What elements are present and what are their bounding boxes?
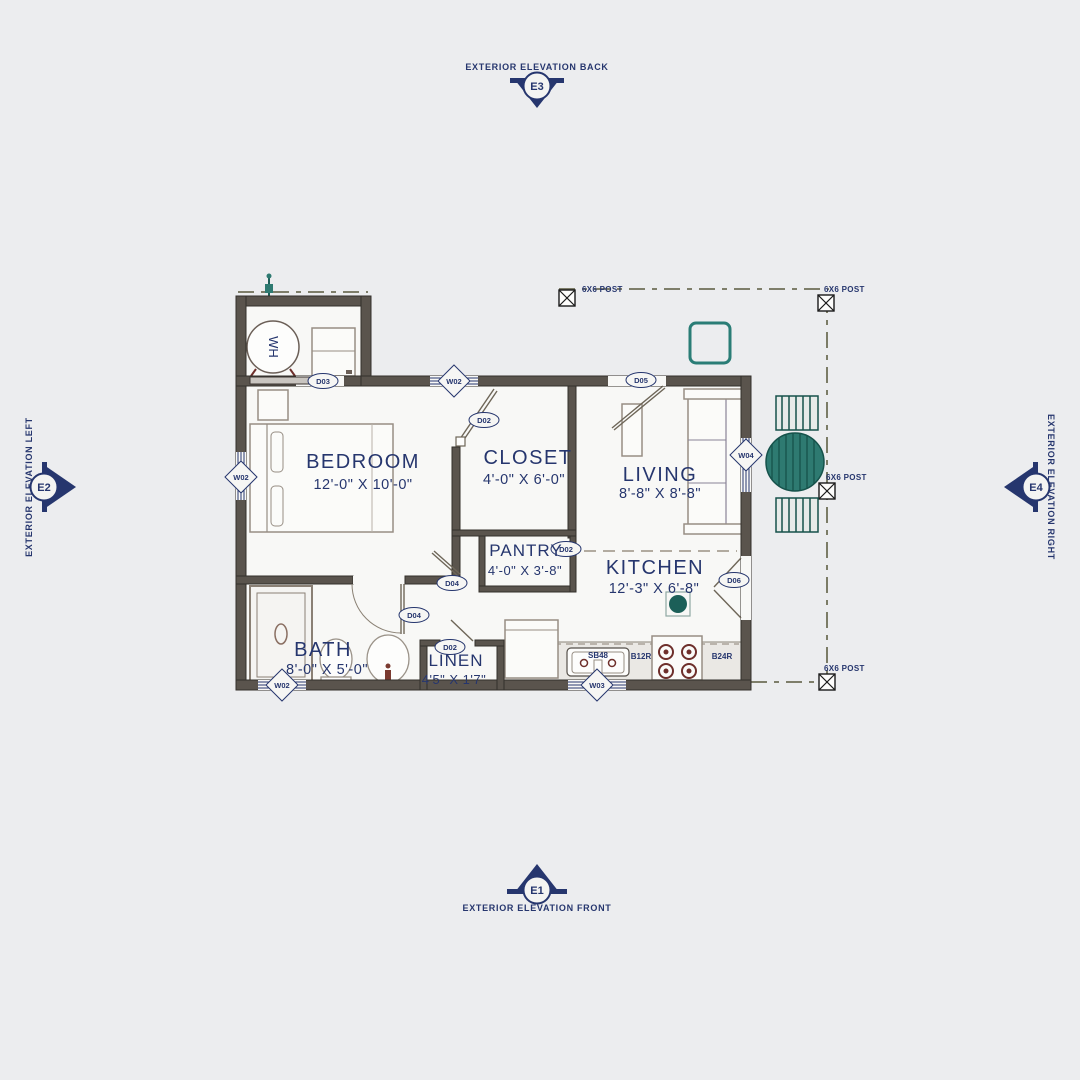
- sofa: [684, 389, 742, 534]
- svg-text:8'-8" X 8'-8": 8'-8" X 8'-8": [619, 486, 701, 502]
- post-3-label: 6X6 POST: [826, 473, 867, 482]
- post-2-label: 6X6 POST: [824, 285, 865, 294]
- patio-chair-top: [776, 394, 818, 432]
- elevation-front-code: E1: [530, 885, 543, 897]
- svg-text:BEDROOM: BEDROOM: [306, 451, 420, 473]
- b12r-label: B12R: [631, 652, 652, 661]
- svg-text:4'-0" X 6'-0": 4'-0" X 6'-0": [483, 472, 565, 488]
- svg-text:D03: D03: [316, 377, 330, 386]
- bath-sink: [367, 635, 409, 684]
- tag-door-kitchen-double: D06: [719, 573, 749, 588]
- svg-text:CLOSET: CLOSET: [483, 447, 572, 469]
- patio-chair-bottom: [776, 496, 818, 534]
- svg-text:W02: W02: [446, 377, 461, 386]
- svg-text:D04: D04: [407, 611, 422, 620]
- refrigerator: [505, 620, 558, 678]
- room-label-closet: CLOSET 4'-0" X 6'-0": [483, 447, 573, 488]
- room-label-pantry: PANTRY 4'-0" X 3'-8": [488, 541, 563, 578]
- svg-text:4'-0" X 3'-8": 4'-0" X 3'-8": [488, 563, 562, 578]
- washer-unit: [312, 328, 355, 376]
- nightstand: [258, 390, 288, 420]
- room-label-kitchen: KITCHEN 12'-3" X 6'-8": [606, 557, 704, 597]
- post-4-label: 6X6 POST: [824, 664, 865, 673]
- room-label-bedroom: BEDROOM 12'-0" X 10'-0": [306, 451, 420, 493]
- room-label-living: LIVING 8'-8" X 8'-8": [619, 464, 701, 502]
- svg-text:D02: D02: [477, 416, 491, 425]
- svg-text:W03: W03: [589, 681, 604, 690]
- floor-plan-canvas: 6X6 POST 6X6 POST 6X6 POST 6X6 POST: [0, 0, 1080, 1080]
- tag-door-bedroom: D04: [437, 576, 467, 591]
- svg-text:PANTRY: PANTRY: [489, 541, 562, 560]
- svg-text:D06: D06: [727, 576, 741, 585]
- svg-text:8'-0" X 5'-0": 8'-0" X 5'-0": [286, 662, 368, 678]
- svg-text:4'5" X 1'7": 4'5" X 1'7": [422, 672, 487, 687]
- svg-text:W02: W02: [233, 473, 248, 482]
- svg-text:W04: W04: [738, 451, 754, 460]
- tag-door-bath: D04: [399, 608, 429, 623]
- svg-text:D04: D04: [445, 579, 460, 588]
- elevation-back-label: EXTERIOR ELEVATION BACK: [465, 62, 608, 72]
- tag-door-utility: D03: [308, 374, 338, 389]
- elevation-right-code: E4: [1029, 482, 1043, 494]
- svg-text:12'-3" X 6'-8": 12'-3" X 6'-8": [609, 581, 700, 597]
- elevation-front-label: EXTERIOR ELEVATION FRONT: [463, 903, 612, 913]
- svg-text:LIVING: LIVING: [623, 464, 698, 486]
- svg-text:12'-0" X 10'-0": 12'-0" X 10'-0": [313, 477, 412, 493]
- svg-text:BATH: BATH: [294, 639, 352, 661]
- room-label-linen: LINEN 4'5" X 1'7": [422, 651, 487, 687]
- b24r-label: B24R: [712, 652, 733, 661]
- tag-door-entry: D05: [626, 373, 656, 388]
- sink-base-label: SB48: [588, 651, 609, 660]
- elevation-left-code: E2: [37, 482, 50, 494]
- svg-text:D05: D05: [634, 376, 648, 385]
- water-heater-label: WH: [266, 336, 281, 358]
- svg-text:LINEN: LINEN: [428, 651, 483, 670]
- svg-text:W02: W02: [274, 681, 289, 690]
- tag-door-closet: D02: [469, 413, 499, 428]
- elevation-back-code: E3: [530, 81, 543, 93]
- svg-text:KITCHEN: KITCHEN: [606, 557, 704, 579]
- stove: [652, 636, 702, 680]
- post-1-label: 6X6 POST: [582, 285, 623, 294]
